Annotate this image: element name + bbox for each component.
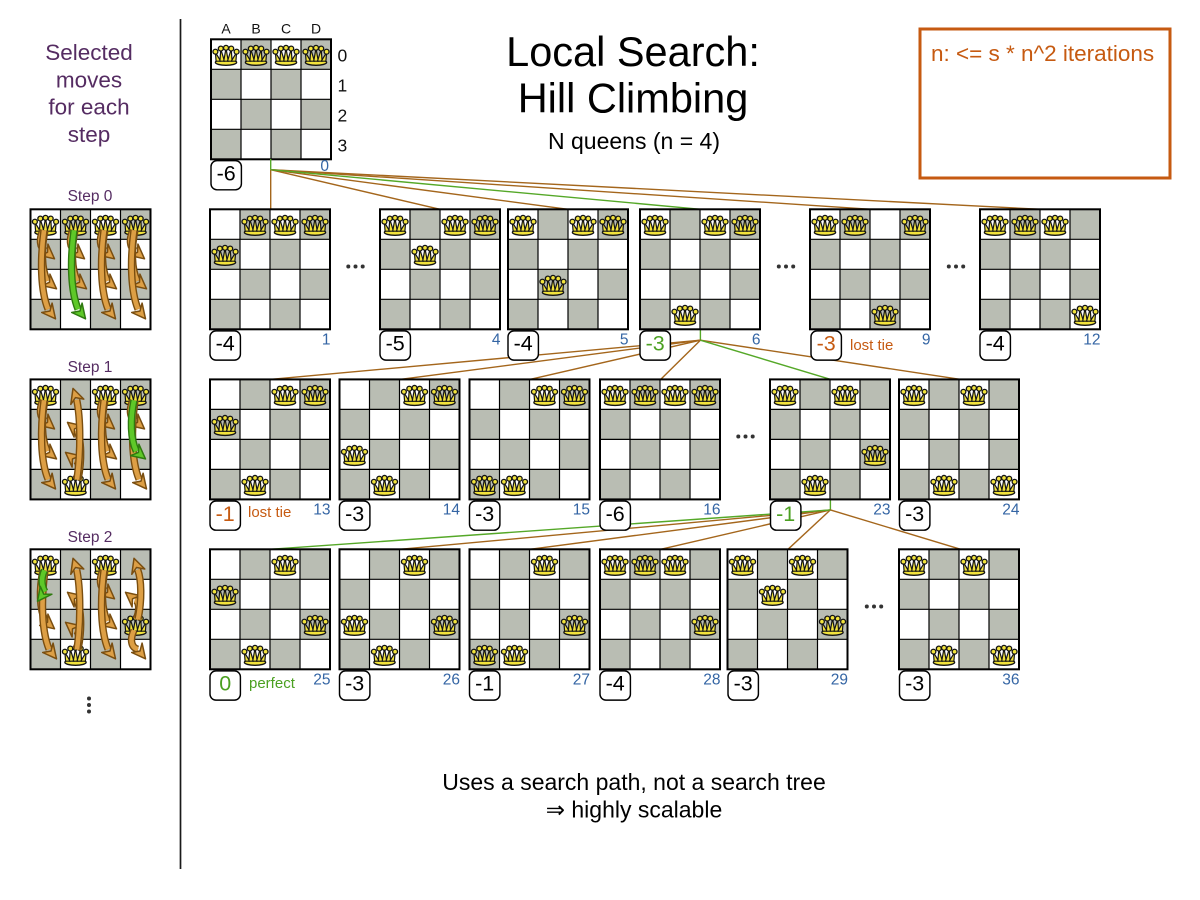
svg-text:-4: -4 <box>986 332 1005 356</box>
svg-text:lost tie: lost tie <box>850 337 893 354</box>
svg-text:-1: -1 <box>216 502 235 526</box>
svg-text:-3: -3 <box>905 502 924 526</box>
svg-text:29: 29 <box>831 671 848 688</box>
svg-text:25: 25 <box>313 671 330 688</box>
svg-text:26: 26 <box>443 671 460 688</box>
svg-text:4: 4 <box>492 331 501 348</box>
svg-text:-3: -3 <box>905 672 924 696</box>
svg-text:Uses a search path, not a sear: Uses a search path, not a search tree <box>442 769 826 795</box>
svg-text:-3: -3 <box>646 332 665 356</box>
svg-text:1: 1 <box>338 75 348 95</box>
svg-text:0: 0 <box>320 158 329 175</box>
svg-text:23: 23 <box>873 501 890 518</box>
svg-text:3: 3 <box>338 135 348 155</box>
svg-text:lost tie: lost tie <box>248 504 291 521</box>
svg-text:5: 5 <box>620 331 629 348</box>
svg-text:36: 36 <box>1002 671 1019 688</box>
svg-text:28: 28 <box>703 671 720 688</box>
svg-text:27: 27 <box>573 671 590 688</box>
svg-text:12: 12 <box>1083 331 1100 348</box>
svg-text:Step 0: Step 0 <box>68 188 113 205</box>
svg-text:B: B <box>251 21 260 37</box>
svg-text:-5: -5 <box>386 332 405 356</box>
svg-text:-3: -3 <box>345 672 364 696</box>
svg-text:9: 9 <box>922 331 931 348</box>
svg-text:-4: -4 <box>216 332 235 356</box>
svg-text:N queens (n = 4): N queens (n = 4) <box>548 128 720 154</box>
svg-text:15: 15 <box>573 501 590 518</box>
svg-text:C: C <box>281 21 291 37</box>
svg-text:16: 16 <box>703 501 720 518</box>
svg-text:A: A <box>221 21 231 37</box>
svg-text:1: 1 <box>322 331 331 348</box>
svg-text:24: 24 <box>1002 501 1020 518</box>
svg-text:Step 1: Step 1 <box>68 359 113 376</box>
svg-text:14: 14 <box>443 501 461 518</box>
svg-text:-3: -3 <box>345 502 364 526</box>
svg-text:Local Search:Hill Climbing: Local Search:Hill Climbing <box>506 28 760 122</box>
svg-text:0: 0 <box>338 45 348 65</box>
svg-text:-3: -3 <box>475 502 494 526</box>
svg-text:-1: -1 <box>776 502 795 526</box>
svg-text:6: 6 <box>752 331 761 348</box>
svg-text:-6: -6 <box>606 502 625 526</box>
svg-text:0: 0 <box>219 672 231 696</box>
svg-text:2: 2 <box>338 105 348 125</box>
svg-text:perfect: perfect <box>249 675 296 692</box>
svg-text:-4: -4 <box>514 332 533 356</box>
svg-text:-1: -1 <box>475 672 494 696</box>
svg-text:D: D <box>311 21 321 37</box>
svg-text:-6: -6 <box>217 161 236 185</box>
svg-text:-3: -3 <box>817 332 836 356</box>
svg-text:13: 13 <box>313 501 330 518</box>
svg-text:Step 2: Step 2 <box>68 529 113 546</box>
svg-text:⇒ highly scalable: ⇒ highly scalable <box>546 797 723 823</box>
svg-text:-4: -4 <box>606 672 625 696</box>
svg-text:-3: -3 <box>734 672 753 696</box>
svg-text:n: <= s * n^2 iterations: n: <= s * n^2 iterations <box>931 41 1154 66</box>
